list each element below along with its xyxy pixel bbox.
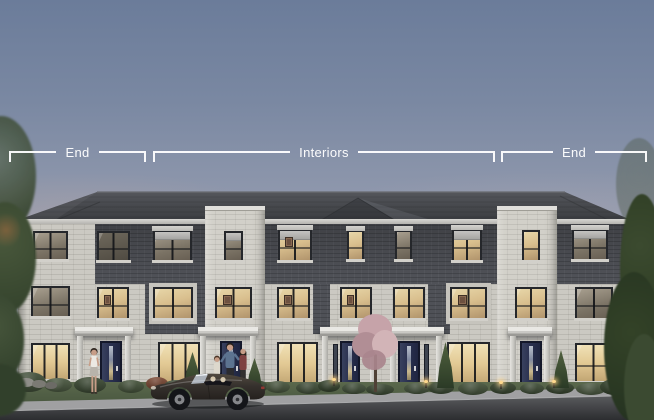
- window-lintel: [394, 226, 413, 231]
- interior-artwork: [458, 295, 467, 305]
- bracket-line: [595, 151, 645, 153]
- interior-artwork: [223, 295, 232, 305]
- window-sill: [277, 260, 313, 263]
- window: [153, 230, 192, 262]
- window-lintel: [346, 226, 365, 231]
- door-glass: [407, 346, 411, 380]
- bracket-label-interiors: Interiors: [290, 146, 358, 159]
- window: [452, 229, 482, 262]
- window-sill: [514, 318, 548, 321]
- shrub: [118, 380, 144, 393]
- shrub: [318, 380, 340, 392]
- shrub: [458, 382, 488, 395]
- bracket-right-end: End: [501, 146, 647, 163]
- bracket-left-end: End: [9, 146, 146, 163]
- garden-light: [425, 383, 427, 388]
- roller-shade: [454, 231, 480, 240]
- bracket-line: [503, 151, 553, 153]
- interior-artwork: [285, 237, 293, 247]
- window: [278, 229, 312, 262]
- window: [277, 287, 310, 320]
- window-mullion: [99, 233, 128, 260]
- window-sill: [223, 260, 244, 263]
- pedestrian-woman: [84, 346, 104, 400]
- window-sill: [96, 318, 130, 321]
- shrub: [490, 382, 516, 394]
- entry-canopy: [508, 327, 552, 336]
- flowering-tree: [352, 312, 400, 392]
- tree-right: [594, 138, 654, 420]
- door-glass: [109, 346, 113, 380]
- window-lintel: [451, 225, 483, 230]
- foliage: [0, 364, 26, 416]
- bracket-tick: [493, 151, 495, 162]
- bracket-line: [11, 151, 56, 153]
- bracket-label-left-end: End: [56, 146, 98, 159]
- entry-canopy: [198, 327, 258, 336]
- window: [515, 287, 547, 320]
- bracket-tick: [645, 151, 647, 162]
- window: [215, 287, 252, 320]
- entry-canopy: [75, 327, 133, 336]
- convertible-car: [146, 360, 270, 410]
- bracket-label-right-end: End: [553, 146, 595, 159]
- window-sill: [152, 318, 194, 321]
- window-mullion: [517, 289, 545, 318]
- door-handle: [116, 366, 118, 371]
- interior-artwork: [347, 295, 355, 305]
- garden-light: [553, 383, 555, 388]
- window-sill: [449, 318, 488, 321]
- roller-shade: [155, 232, 190, 240]
- window-mullion: [349, 232, 362, 259]
- landscape-rock: [45, 382, 57, 389]
- window: [97, 231, 130, 262]
- window-mullion: [524, 232, 538, 260]
- window: [224, 231, 243, 262]
- window: [97, 287, 129, 320]
- window-lintel: [277, 225, 313, 230]
- window-lintel: [152, 226, 193, 231]
- window: [395, 230, 412, 261]
- door-handle: [414, 366, 416, 371]
- window-sill: [276, 318, 311, 321]
- garden-light: [500, 384, 502, 389]
- interior-artwork: [284, 295, 292, 305]
- door-glass: [529, 346, 533, 380]
- interior-artwork: [104, 295, 112, 305]
- window-sill: [521, 260, 541, 263]
- townhome-elevation-rendering: End Interiors End: [0, 0, 654, 420]
- window-sill: [152, 260, 193, 263]
- bracket-interiors: Interiors: [153, 146, 495, 163]
- bracket-line: [99, 151, 144, 153]
- window: [153, 287, 193, 320]
- window-sill: [394, 259, 413, 262]
- window: [522, 230, 540, 262]
- door-handle: [536, 366, 538, 371]
- window-sill: [451, 260, 483, 263]
- window-sill: [346, 259, 365, 262]
- window: [347, 230, 364, 261]
- bracket-line: [155, 151, 290, 153]
- window: [450, 287, 487, 320]
- window-sill: [214, 318, 253, 321]
- window-mullion: [397, 232, 410, 259]
- pink-foliage: [362, 350, 386, 370]
- bracket-line: [358, 151, 493, 153]
- bracket-tick: [144, 151, 146, 162]
- window-sill: [96, 260, 131, 263]
- roller-shade: [226, 233, 241, 241]
- window-mullion: [155, 289, 191, 318]
- garden-light: [333, 381, 335, 386]
- shrub: [520, 383, 544, 394]
